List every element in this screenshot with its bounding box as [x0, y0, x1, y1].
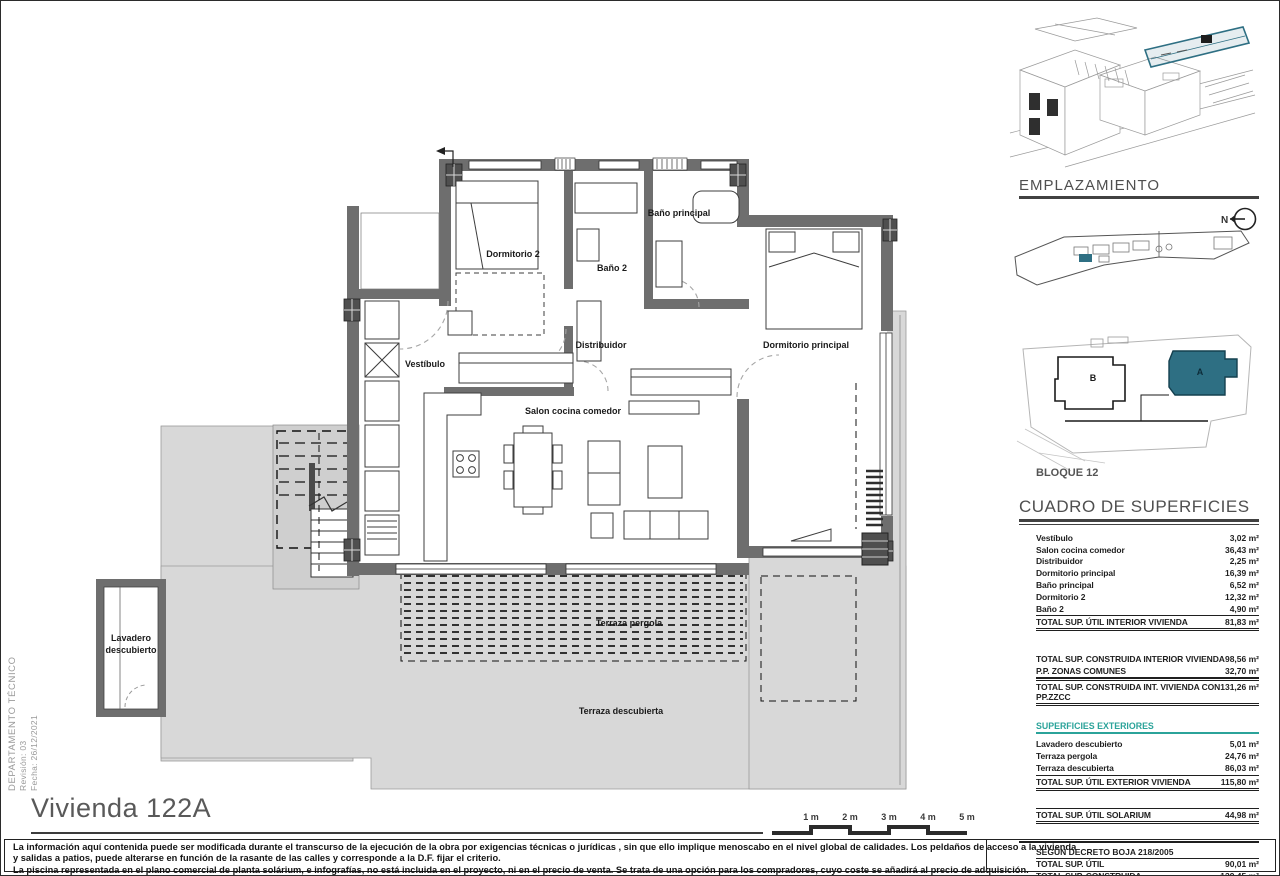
surface-row: Baño principal6,52 m² — [1036, 579, 1259, 591]
surface-value: 6,52 m² — [1230, 580, 1259, 590]
surface-label: Baño 2 — [1036, 604, 1064, 614]
scale-bar: 1 m 2 m 3 m 4 m 5 m — [769, 807, 975, 837]
block-a-label: A — [1197, 367, 1204, 377]
surface-value: 139,45 m² — [1220, 871, 1259, 876]
surfaces-rule — [1019, 519, 1259, 522]
room-label-dormitorio-principal: Dormitorio principal — [763, 340, 849, 350]
room-label-lavadero-1: Lavadero — [111, 633, 152, 643]
surface-row: Dormitorio 212,32 m² — [1036, 591, 1259, 603]
surface-value: 24,76 m² — [1225, 751, 1259, 761]
room-label-distribuidor: Distribuidor — [576, 340, 627, 350]
surface-label: TOTAL SUP. ÚTIL — [1036, 859, 1104, 869]
surface-row: Terraza pergola24,76 m² — [1036, 750, 1259, 762]
interior-rows: Vestíbulo3,02 m² Salon cocina comedor36,… — [1019, 532, 1259, 631]
room-label-lavadero-2: descubierto — [105, 645, 157, 655]
surface-value: 98,56 m² — [1225, 654, 1259, 664]
block-plan: B A — [1013, 329, 1261, 477]
surfaces-title: CUADRO DE SUPERFICIES — [1019, 497, 1259, 517]
surface-label: Dormitorio principal — [1036, 568, 1115, 578]
surface-row: TOTAL SUP. CONSTRUIDA139,45 m² — [1036, 870, 1259, 876]
date-label: Fecha: 26/12/2021 — [29, 541, 40, 791]
scale-label-2m: 2 m — [842, 812, 858, 822]
surface-row: Distribuidor2,25 m² — [1036, 556, 1259, 568]
scale-label-1m: 1 m — [803, 812, 819, 822]
emplazamiento-title: EMPLAZAMIENTO — [1019, 177, 1259, 194]
surface-row: Lavadero descubierto5,01 m² — [1036, 739, 1259, 751]
surface-value: 16,39 m² — [1225, 568, 1259, 578]
axonometric-view — [1005, 15, 1259, 171]
surface-label: Baño principal — [1036, 580, 1094, 590]
surface-value: 2,25 m² — [1230, 556, 1259, 566]
disclaimer-divider — [986, 839, 987, 872]
block-b-label: B — [1090, 373, 1097, 383]
surface-label: Terraza pergola — [1036, 751, 1097, 761]
emplazamiento-rule — [1019, 196, 1259, 199]
exteriores-header: SUPERFICIES EXTERIORES — [1036, 721, 1259, 734]
surface-row: Dormitorio principal16,39 m² — [1036, 567, 1259, 579]
stairs — [273, 425, 359, 589]
surface-label: Vestíbulo — [1036, 533, 1073, 543]
surface-label: TOTAL SUP. ÚTIL INTERIOR VIVIENDA — [1036, 617, 1188, 627]
surface-value: 36,43 m² — [1225, 545, 1259, 555]
surface-value: 32,70 m² — [1225, 666, 1259, 676]
floor-plan: Dormitorio 2 Baño 2 Baño principal Dormi… — [1, 1, 986, 811]
scale-label-4m: 4 m — [920, 812, 936, 822]
surface-value: 44,98 m² — [1225, 810, 1259, 820]
exterior-total-row: TOTAL SUP. ÚTIL EXTERIOR VIVIENDA115,80 … — [1036, 775, 1259, 791]
surface-label: TOTAL SUP. CONSTRUIDA INTERIOR VIVIENDA — [1036, 654, 1225, 664]
room-label-bano2: Baño 2 — [597, 263, 627, 273]
site-highlight-block — [1079, 254, 1092, 262]
surface-value: 3,02 m² — [1230, 533, 1259, 543]
exterior-rows: Lavadero descubierto5,01 m² Terraza perg… — [1019, 739, 1259, 791]
scale-label-3m: 3 m — [881, 812, 897, 822]
room-label-terraza-pergola: Terraza pergola — [596, 618, 663, 628]
room-label-salon: Salon cocina comedor — [525, 406, 622, 416]
solarium-total-row: TOTAL SUP. ÚTIL SOLARIUM44,98 m² — [1036, 808, 1259, 824]
surface-value: 131,26 m² — [1220, 682, 1259, 692]
room-label-vestibulo: Vestíbulo — [405, 359, 446, 369]
surface-table: CUADRO DE SUPERFICIES Vestíbulo3,02 m² S… — [1019, 497, 1259, 876]
title-rule — [31, 832, 763, 834]
surface-label: TOTAL SUP. ÚTIL EXTERIOR VIVIENDA — [1036, 777, 1191, 787]
surface-label: Lavadero descubierto — [1036, 739, 1122, 749]
room-label-dormitorio2: Dormitorio 2 — [486, 249, 540, 259]
highlighted-unit — [1145, 27, 1249, 67]
surface-value: 4,90 m² — [1230, 604, 1259, 614]
decreto-block: SEGÚN DECRETO BOJA 218/2005 TOTAL SUP. Ú… — [1019, 841, 1259, 876]
surfaces-rule-thin — [1019, 524, 1259, 525]
construida-rows: TOTAL SUP. CONSTRUIDA INTERIOR VIVIENDA9… — [1019, 653, 1259, 705]
north-label: N — [1221, 215, 1228, 226]
revision-label: Revisión: 03 — [18, 541, 29, 791]
bloque-label: BLOQUE 12 — [1036, 467, 1098, 479]
drawing-sheet: Dormitorio 2 Baño 2 Baño principal Dormi… — [0, 0, 1280, 876]
surface-row: Salon cocina comedor36,43 m² — [1036, 544, 1259, 556]
surface-value: 12,32 m² — [1225, 592, 1259, 602]
solarium-block: TOTAL SUP. ÚTIL SOLARIUM44,98 m² — [1019, 808, 1259, 824]
surface-label: Distribuidor — [1036, 556, 1083, 566]
decreto-title: SEGÚN DECRETO BOJA 218/2005 — [1036, 846, 1259, 859]
surface-row: Terraza descubierta86,03 m² — [1036, 762, 1259, 774]
surface-label: TOTAL SUP. CONSTRUIDA — [1036, 871, 1141, 876]
title-block-note: DEPARTAMENTO TÉCNICO Revisión: 03 Fecha:… — [7, 541, 40, 791]
surface-value: 115,80 m² — [1221, 777, 1259, 787]
surface-label: TOTAL SUP. CONSTRUIDA INT. VIVIENDA CON … — [1036, 682, 1220, 702]
surface-label: TOTAL SUP. ÚTIL SOLARIUM — [1036, 810, 1151, 820]
scale-label-5m: 5 m — [959, 812, 975, 822]
page-title: Vivienda 122A — [31, 793, 211, 824]
surface-row: TOTAL SUP. ÚTIL90,01 m² — [1036, 859, 1259, 871]
pergola-area — [401, 569, 746, 661]
room-label-bano-principal: Baño principal — [648, 208, 711, 218]
surface-value: 86,03 m² — [1225, 763, 1259, 773]
surface-label: P.P. ZONAS COMUNES — [1036, 666, 1126, 676]
surface-label: Salon cocina comedor — [1036, 545, 1125, 555]
interior-total-row: TOTAL SUP. ÚTIL INTERIOR VIVIENDA81,83 m… — [1036, 615, 1259, 631]
surface-value: 90,01 m² — [1225, 859, 1259, 869]
construida-total-row: TOTAL SUP. CONSTRUIDA INT. VIVIENDA CON … — [1036, 680, 1259, 706]
site-plan — [1009, 227, 1257, 315]
surface-row: Baño 24,90 m² — [1036, 603, 1259, 615]
surface-row: Vestíbulo3,02 m² — [1036, 532, 1259, 544]
surface-label: Terraza descubierta — [1036, 763, 1114, 773]
surface-row: TOTAL SUP. CONSTRUIDA INTERIOR VIVIENDA9… — [1036, 653, 1259, 665]
surface-row: P.P. ZONAS COMUNES32,70 m² — [1036, 665, 1259, 679]
emplazamiento-header: EMPLAZAMIENTO — [1019, 177, 1259, 199]
surface-label: Dormitorio 2 — [1036, 592, 1085, 602]
block-b-outline — [1055, 357, 1125, 409]
surface-value: 5,01 m² — [1230, 739, 1259, 749]
room-label-terraza-descubierta: Terraza descubierta — [579, 706, 664, 716]
department-label: DEPARTAMENTO TÉCNICO — [7, 541, 18, 791]
surface-value: 81,83 m² — [1225, 617, 1259, 627]
